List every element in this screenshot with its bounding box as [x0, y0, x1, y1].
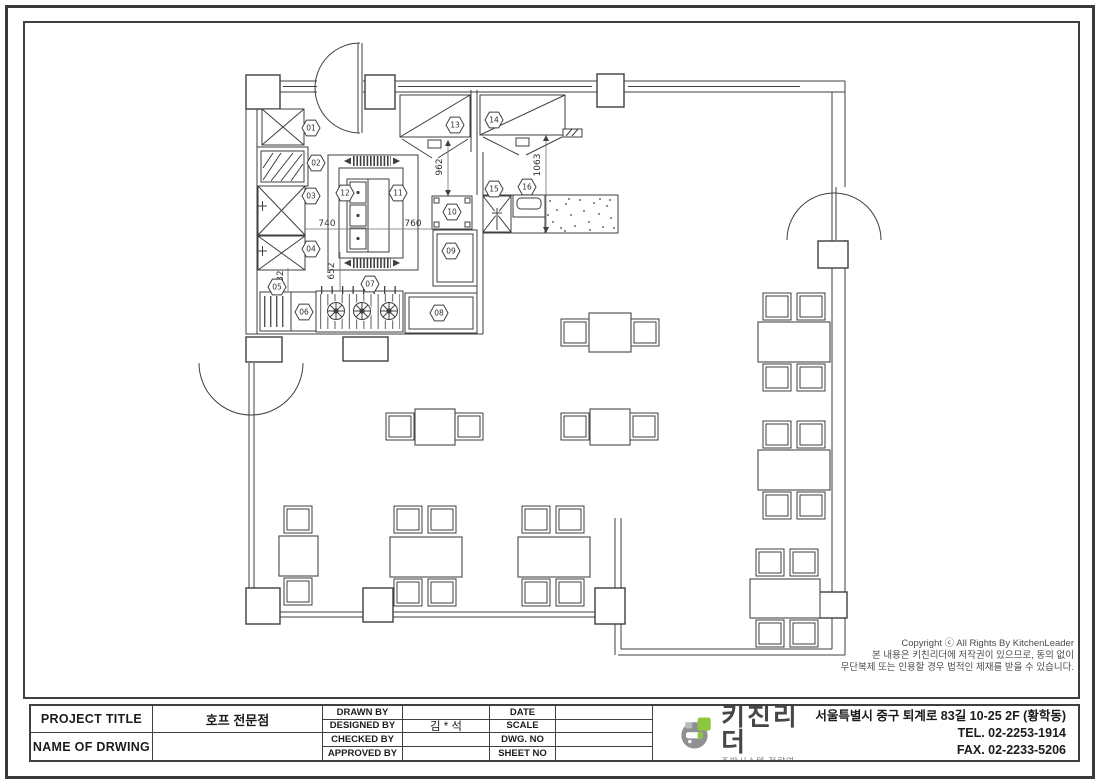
equipment-05-shelf [260, 292, 291, 331]
svg-text:05: 05 [272, 283, 282, 292]
island-unit [328, 155, 418, 270]
date-label: DATE [490, 706, 556, 720]
dim-740: 740 [318, 219, 335, 229]
callout-08: 08 [430, 305, 448, 321]
dining-table-2seat [279, 506, 318, 605]
designed-by-value: 김 * 석 [403, 720, 490, 734]
svg-text:09: 09 [446, 247, 456, 256]
company-panel: 맞춤형 주방설계 키친리더 주방시스템 전략연구소 서울특별시 중구 퇴계로 8… [653, 706, 1078, 760]
dwg-no-label: DWG. NO [490, 733, 556, 747]
callout-16: 16 [518, 179, 536, 195]
counter-stone-finish [545, 195, 618, 233]
drawn-by-value [403, 706, 490, 720]
dim-760: 760 [404, 219, 421, 229]
callout-04: 04 [302, 241, 320, 257]
floor-plan: 740 760 652 532 962 1063 01 02 03 04 05 … [0, 0, 1100, 700]
drawn-by-label: DRAWN BY [323, 706, 403, 720]
address-line: 서울특별시 중구 퇴계로 83길 10-25 2F (황학동) [815, 708, 1066, 725]
tel-line: TEL. 02-2253-1914 [815, 725, 1066, 742]
checked-by-value [403, 733, 490, 747]
svg-text:16: 16 [522, 183, 532, 192]
approved-by-value [403, 747, 490, 761]
svg-text:03: 03 [306, 192, 316, 201]
company-address: 서울특별시 중구 퇴계로 83길 10-25 2F (황학동) TEL. 02-… [815, 708, 1066, 759]
svg-text:11: 11 [393, 189, 403, 198]
svg-text:14: 14 [489, 116, 499, 125]
kitchenleader-logo: 맞춤형 주방설계 키친리더 주방시스템 전략연구소 [679, 706, 801, 760]
svg-text:13: 13 [450, 121, 460, 130]
entrance-door-top [315, 43, 362, 133]
callout-11: 11 [389, 185, 407, 201]
callout-03: 03 [302, 188, 320, 204]
callout-02: 02 [307, 155, 325, 171]
svg-text:08: 08 [434, 309, 444, 318]
dining-table-4seat [758, 293, 830, 391]
dining-table-4seat [750, 549, 820, 647]
dining-table-4seat [758, 421, 830, 519]
svg-text:02: 02 [311, 159, 321, 168]
callout-15: 15 [485, 181, 503, 197]
callout-06: 06 [295, 304, 313, 320]
brand-name: 키친리더 [721, 706, 801, 755]
equipment-03-sink [258, 186, 305, 235]
sheet-no-value [556, 747, 653, 761]
callout-01: 01 [302, 120, 320, 136]
svg-text:15: 15 [489, 185, 499, 194]
equipment-15-sink [483, 196, 511, 232]
callout-14: 14 [485, 112, 503, 128]
callout-07: 07 [361, 276, 379, 292]
scale-label: SCALE [490, 720, 556, 734]
dining-table-2seat [561, 313, 659, 352]
scale-value [556, 720, 653, 734]
approved-by-label: APPROVED BY [323, 747, 403, 761]
entrance-door-right [787, 187, 881, 240]
dwg-no-value [556, 733, 653, 747]
title-block: PROJECT TITLE 호프 전문점 DRAWN BY DATE 맞춤형 주… [29, 704, 1080, 762]
callout-05: 05 [268, 279, 286, 295]
kitchenleader-logo-mark [679, 711, 713, 755]
callout-13: 13 [446, 117, 464, 133]
equipment-01-worktable [262, 109, 304, 145]
sheet-no-label: SHEET NO [490, 747, 556, 761]
equipment-16-unit [513, 195, 545, 217]
equipment-02-griddle [257, 147, 308, 186]
dim-1063: 1063 [533, 154, 543, 177]
dim-962: 962 [435, 158, 445, 175]
callout-09: 09 [442, 243, 460, 259]
name-of-drawing-value [153, 733, 323, 760]
svg-text:07: 07 [365, 280, 375, 289]
svg-text:01: 01 [306, 124, 316, 133]
entrance-door-left [199, 363, 303, 415]
copyright-line-1: Copyright ⓒ All Rights By KitchenLeader [654, 638, 1074, 650]
callout-10: 10 [443, 204, 461, 220]
checked-by-label: CHECKED BY [323, 733, 403, 747]
copyright-line-2: 본 내용은 키친리더에 저작권이 있으므로, 동의 없이 [654, 650, 1074, 662]
copyright-line-3: 무단복제 또는 인용할 경우 법적인 제재를 받을 수 있습니다. [654, 662, 1074, 674]
date-value [556, 706, 653, 720]
svg-text:06: 06 [299, 308, 309, 317]
callout-12: 12 [336, 185, 354, 201]
fax-line: FAX. 02-2233-5206 [815, 742, 1066, 759]
project-title-label: PROJECT TITLE [31, 706, 153, 733]
brand-subtitle: 주방시스템 전략연구소 [721, 757, 801, 760]
name-of-drawing-label: NAME OF DRWING [31, 733, 153, 760]
equipment-07-gas-range [316, 290, 403, 332]
copyright-notice: Copyright ⓒ All Rights By KitchenLeader … [654, 638, 1074, 674]
dining-table-2seat [561, 409, 658, 445]
designed-by-label: DESIGNED BY [323, 720, 403, 734]
dining-table-2seat [386, 409, 483, 445]
dining-table-4seat [518, 506, 590, 606]
svg-text:04: 04 [306, 245, 316, 254]
project-title-value: 호프 전문점 [153, 706, 323, 733]
equipment-04-sink [258, 236, 305, 270]
dining-table-4seat [390, 506, 462, 606]
dim-652: 652 [327, 262, 337, 279]
svg-text:12: 12 [340, 189, 350, 198]
svg-text:10: 10 [447, 208, 457, 217]
